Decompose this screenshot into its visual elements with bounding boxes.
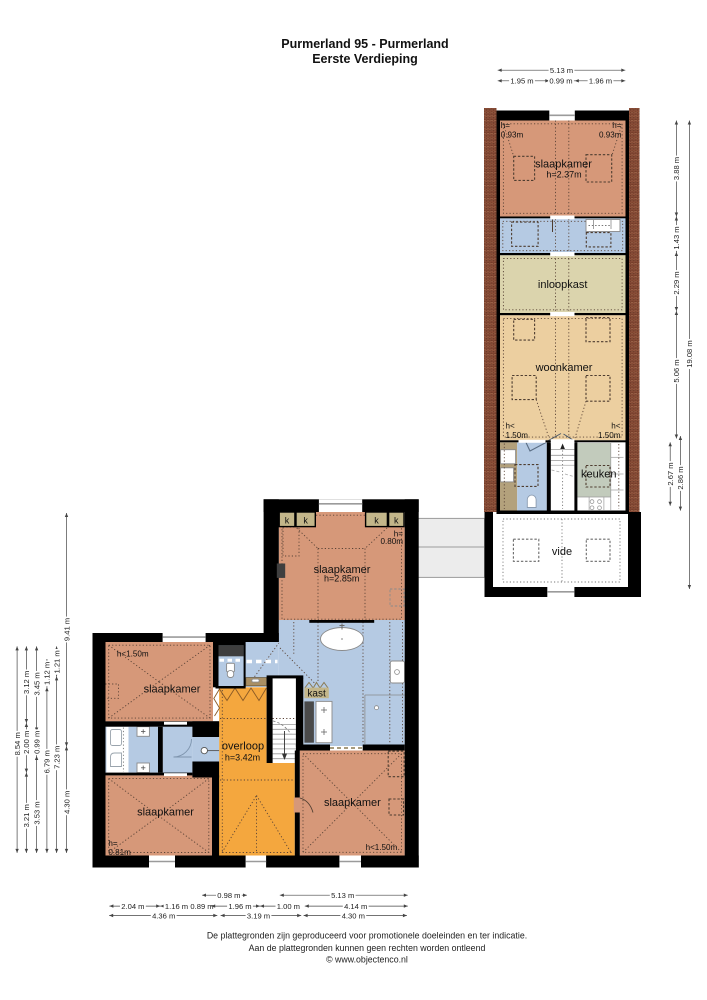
svg-text:1.16 m: 1.16 m <box>165 902 188 911</box>
svg-text:0.93m: 0.93m <box>599 131 622 140</box>
svg-text:0.99 m: 0.99 m <box>32 731 41 754</box>
svg-text:1.96 m: 1.96 m <box>589 77 612 86</box>
svg-text:3.88 m: 3.88 m <box>672 157 681 180</box>
svg-text:9.41 m: 9.41 m <box>62 618 71 641</box>
svg-text:2.00 m: 2.00 m <box>22 731 31 754</box>
svg-text:h=: h= <box>108 839 118 848</box>
svg-text:1.50m: 1.50m <box>598 431 621 440</box>
svg-text:1.43 m: 1.43 m <box>672 226 681 249</box>
svg-text:h=: h= <box>612 121 622 130</box>
svg-text:1.95 m: 1.95 m <box>510 77 533 86</box>
svg-text:1.96 m: 1.96 m <box>228 902 251 911</box>
svg-text:2.67 m: 2.67 m <box>666 462 675 485</box>
svg-text:3.45 m: 3.45 m <box>32 672 41 695</box>
svg-text:1.21 m: 1.21 m <box>52 650 61 673</box>
svg-text:19.08 m: 19.08 m <box>685 340 694 367</box>
svg-text:2.86 m: 2.86 m <box>676 466 685 489</box>
svg-text:Aan de plattegronden kunnen ge: Aan de plattegronden kunnen geen rechten… <box>249 943 486 953</box>
svg-text:k: k <box>285 516 290 526</box>
svg-text:8.54 m: 8.54 m <box>13 732 22 755</box>
svg-text:4.30 m: 4.30 m <box>342 911 365 920</box>
svg-text:3.12 m: 3.12 m <box>22 671 31 694</box>
svg-text:3.21 m: 3.21 m <box>22 804 31 827</box>
svg-text:h<: h< <box>611 422 621 431</box>
svg-text:keuken: keuken <box>581 469 616 481</box>
svg-text:h=: h= <box>501 121 511 130</box>
svg-text:inloopkast: inloopkast <box>538 279 588 291</box>
svg-text:0.93m: 0.93m <box>501 131 524 140</box>
svg-text:h=2.37m: h=2.37m <box>546 170 581 180</box>
svg-text:1.00 m: 1.00 m <box>277 902 300 911</box>
svg-text:h<1.50m: h<1.50m <box>117 650 149 659</box>
svg-text:0.89 m: 0.89 m <box>190 902 213 911</box>
svg-text:1.50m: 1.50m <box>506 431 529 440</box>
svg-text:overloop: overloop <box>222 741 264 753</box>
svg-text:h=3.42m: h=3.42m <box>225 753 260 763</box>
svg-text:3.19 m: 3.19 m <box>247 911 270 920</box>
svg-text:5.06 m: 5.06 m <box>672 359 681 382</box>
svg-text:slaapkamer: slaapkamer <box>137 807 194 819</box>
svg-text:vide: vide <box>552 546 572 558</box>
svg-text:0.80m: 0.80m <box>381 537 404 546</box>
svg-text:5.13 m: 5.13 m <box>550 66 573 75</box>
svg-text:4.36 m: 4.36 m <box>152 911 175 920</box>
svg-text:k: k <box>394 516 399 526</box>
svg-text:Eerste Verdieping: Eerste Verdieping <box>312 52 418 66</box>
svg-text:k: k <box>303 516 308 526</box>
svg-text:3.53 m: 3.53 m <box>32 801 41 824</box>
svg-text:h<1.50m: h<1.50m <box>366 843 398 852</box>
svg-text:4.30 m: 4.30 m <box>62 791 71 814</box>
svg-text:4.14 m: 4.14 m <box>344 902 367 911</box>
svg-text:k: k <box>374 516 379 526</box>
svg-text:5.13 m: 5.13 m <box>331 891 354 900</box>
svg-text:© www.objectenco.nl: © www.objectenco.nl <box>326 955 408 965</box>
svg-text:h=2.85m: h=2.85m <box>324 574 359 584</box>
svg-text:0.99 m: 0.99 m <box>549 77 572 86</box>
svg-text:woonkamer: woonkamer <box>535 362 593 374</box>
svg-text:1.12 m: 1.12 m <box>43 662 52 685</box>
svg-text:h<: h< <box>506 422 516 431</box>
svg-text:6.79 m: 6.79 m <box>43 750 52 773</box>
svg-text:2.29 m: 2.29 m <box>672 271 681 294</box>
svg-text:slaapkamer: slaapkamer <box>324 797 381 809</box>
svg-text:De plattegronden zijn geproduc: De plattegronden zijn geproduceerd voor … <box>207 931 527 941</box>
svg-text:0.98 m: 0.98 m <box>217 891 240 900</box>
svg-text:Purmerland 95 - Purmerland: Purmerland 95 - Purmerland <box>281 37 448 51</box>
svg-text:kast: kast <box>307 689 326 700</box>
svg-text:2.04 m: 2.04 m <box>121 902 144 911</box>
svg-text:slaapkamer: slaapkamer <box>144 684 201 696</box>
svg-text:7.23 m: 7.23 m <box>52 746 61 769</box>
